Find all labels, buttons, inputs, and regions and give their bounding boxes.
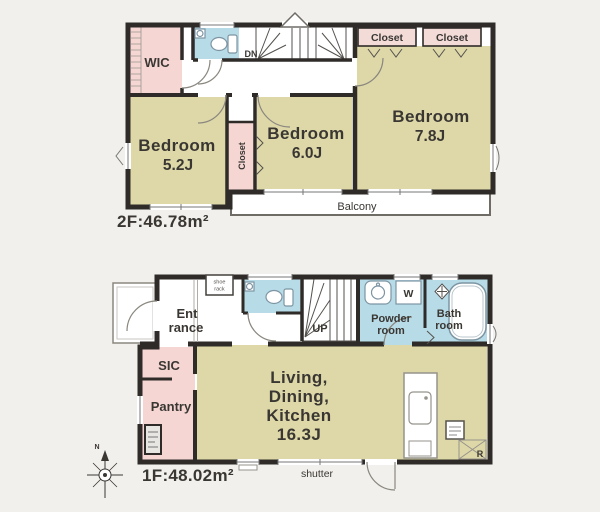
bedroom-60-room xyxy=(257,97,352,190)
ldk-label-2: Dining, xyxy=(269,387,329,406)
ldk-label-1: Living, xyxy=(270,368,328,387)
bay-window-icon xyxy=(281,13,309,27)
powder-room-label-1: Powder xyxy=(371,313,411,325)
closet-top-right-label: Closet xyxy=(436,32,469,44)
shutter-box-icon xyxy=(239,465,257,470)
bedroom-78-name: Bedroom xyxy=(392,107,469,126)
bath-room-label-2: room xyxy=(435,320,463,332)
sic-label: SIC xyxy=(158,358,180,373)
pantry-label: Pantry xyxy=(151,399,192,414)
bedroom-52-size: 5.2J xyxy=(163,157,193,174)
closet-side-label: Closet xyxy=(237,142,247,170)
floorplan-page: WIC DN Closet Closet Closet Bedroom 5.2J… xyxy=(0,0,600,512)
closet-top-left-label: Closet xyxy=(371,32,404,44)
front-door-opening xyxy=(153,301,160,331)
awning-window-icon xyxy=(493,326,496,342)
compass-icon: N xyxy=(87,444,123,498)
ldk-room xyxy=(197,345,487,460)
stairs-up-label: UP xyxy=(312,323,327,335)
ldk-label-4: 16.3J xyxy=(277,425,322,444)
bedroom-78-size: 7.8J xyxy=(415,128,445,145)
powder-room-label-2: room xyxy=(377,325,405,337)
washing-machine-icon: W xyxy=(396,281,421,304)
casement-window-icon xyxy=(116,147,123,165)
washer-label: W xyxy=(404,288,414,300)
terrace-door-arc xyxy=(367,462,395,490)
compass-north-label: N xyxy=(94,444,99,451)
balcony-label: Balcony xyxy=(337,201,377,213)
washbasin-icon xyxy=(365,281,391,304)
bedroom-52-name: Bedroom xyxy=(138,136,215,155)
stove-icon xyxy=(409,441,431,456)
floorplan-drawing: WIC DN Closet Closet Closet Bedroom 5.2J… xyxy=(0,0,600,512)
bedroom-60-name: Bedroom xyxy=(267,124,344,143)
entrance-label-1: Ent xyxy=(177,306,199,321)
floor-1f-plan: shoe rack xyxy=(87,274,496,498)
shutter-label: shutter xyxy=(301,468,334,480)
1f-area-label: 1F:48.02m² xyxy=(142,466,234,485)
entrance-label-2: rance xyxy=(169,320,204,335)
shoe-rack-label-2: rack xyxy=(214,287,225,293)
entrance-porch xyxy=(113,283,157,343)
stairs-down-label: DN xyxy=(245,49,258,59)
cupboard-icon xyxy=(446,421,464,439)
kitchen-sink-icon xyxy=(409,392,431,424)
ldk-label-3: Kitchen xyxy=(266,406,331,425)
wic-label: WIC xyxy=(144,55,170,70)
bedroom-60-size: 6.0J xyxy=(292,145,322,162)
floor-2f-plan: WIC DN Closet Closet Closet Bedroom 5.2J… xyxy=(116,13,499,231)
awning-window-icon xyxy=(496,146,499,170)
water-heater-icon xyxy=(145,425,161,454)
shoe-rack-label-1: shoe xyxy=(214,280,226,286)
refrigerator-label: R xyxy=(477,449,484,459)
2f-area-label: 2F:46.78m² xyxy=(117,212,209,231)
shoe-rack: shoe rack xyxy=(206,275,233,295)
kitchen-counter xyxy=(404,373,437,458)
bath-room-label-1: Bath xyxy=(437,308,462,320)
